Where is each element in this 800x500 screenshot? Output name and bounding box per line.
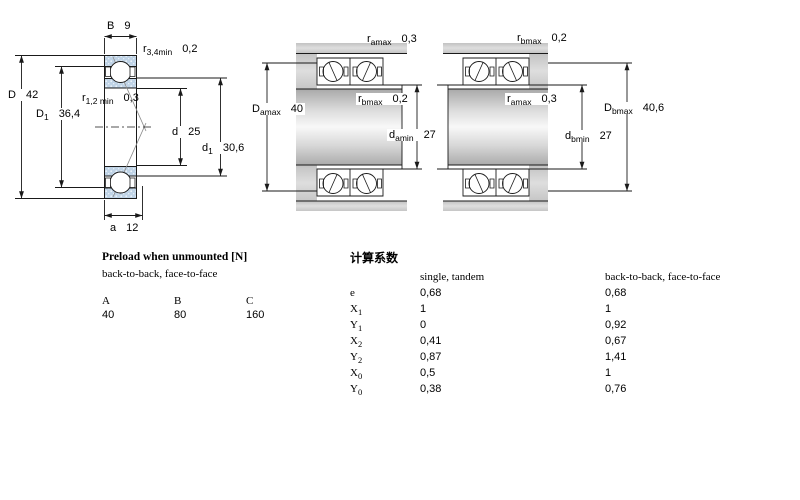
subscript: bmin (571, 134, 589, 144)
factors-header-row: single, tandem back-to-back, face-to-fac… (350, 271, 780, 283)
factor-value-single: 0,68 (420, 287, 605, 299)
factor-value-single: 0,38 (420, 383, 605, 395)
value: 25 (188, 126, 200, 138)
factor-value-paired: 0,76 (605, 383, 780, 395)
dim-label-D1: D136,4 (34, 108, 82, 120)
value: 0,3 (124, 92, 139, 104)
subscript: amax (260, 107, 281, 117)
factor-symbol: X (350, 335, 358, 347)
dim-label-Damax: Damax40 (250, 103, 305, 115)
value: 36,4 (59, 108, 80, 120)
dim-label-d1: d130,6 (200, 142, 246, 154)
factor-value-paired: 0,67 (605, 335, 780, 347)
factor-symbol: X (350, 367, 358, 379)
table-row: Y2 0,87 1,41 (350, 351, 780, 367)
column-header: A (102, 295, 174, 307)
value: 40,6 (643, 102, 664, 114)
value: 9 (124, 20, 130, 32)
factor-value-single: 0,87 (420, 351, 605, 363)
subscript: amin (395, 133, 413, 143)
preload-value: 40 (102, 309, 174, 321)
value: 30,6 (223, 142, 244, 154)
factor-subscript: 0 (358, 371, 362, 381)
subscript: bmax (612, 106, 633, 116)
dim-label-B: B9 (107, 20, 130, 32)
subscript: amax (511, 97, 532, 107)
factor-value-single: 1 (420, 303, 605, 315)
housing-shoulder-top (296, 53, 317, 89)
housing-shoulder-top (529, 53, 548, 89)
factors-table-title: 计算系数 (350, 249, 398, 266)
drawing-canvas (0, 0, 800, 500)
value: 40 (291, 103, 303, 115)
symbol: a (110, 222, 116, 234)
factor-value-single: 0 (420, 319, 605, 331)
ball-bottom (110, 172, 131, 193)
subscript: 1 (208, 146, 213, 156)
dim-label-Dbmax: Dbmax40,6 (602, 102, 666, 114)
dim-label-rbmax-b: rbmax0,2 (517, 32, 567, 44)
dim-label-rbmax-a: rbmax0,2 (356, 93, 410, 105)
symbol: B (107, 20, 114, 32)
preload-value-row: 40 80 160 (102, 309, 318, 321)
value: 42 (26, 89, 38, 101)
dim-label-d: d25 (170, 126, 202, 138)
symbol: D (252, 103, 260, 115)
factor-value-paired: 1,41 (605, 351, 780, 363)
value: 12 (126, 222, 138, 234)
factor-subscript: 2 (358, 355, 362, 365)
preload-header-row: A B C (102, 295, 318, 307)
table-row: X0 0,5 1 (350, 367, 780, 383)
housing-shoulder-bottom (296, 165, 317, 201)
table-row: Y0 0,38 0,76 (350, 383, 780, 399)
factor-subscript: 0 (358, 387, 362, 397)
table-row: e 0,68 0,68 (350, 287, 780, 303)
factors-table-body: e 0,68 0,68 X1 1 1 Y1 0 0,92 X2 0,41 0,6… (350, 287, 780, 399)
mounted-pair-a-figure (262, 43, 422, 211)
column-header-single-tandem: single, tandem (420, 271, 605, 283)
value: 0,2 (551, 32, 566, 44)
factor-symbol: Y (350, 351, 358, 363)
table-row: Y1 0 0,92 (350, 319, 780, 335)
value: 27 (424, 129, 436, 141)
symbol: d (172, 126, 178, 138)
subscript: bmax (362, 97, 383, 107)
dim-label-ramax-a: ramax0,3 (367, 33, 417, 45)
dim-label-ramax-b: ramax0,3 (505, 93, 559, 105)
factor-value-paired: 1 (605, 367, 780, 379)
preload-table-subtitle: back-to-back, face-to-face (102, 268, 217, 280)
factor-value-paired: 0,92 (605, 319, 780, 331)
preload-table-title: Preload when unmounted [N] (102, 251, 247, 263)
preload-value: 160 (246, 309, 318, 321)
value: 27 (600, 130, 612, 142)
subscript: 1,2 min (86, 96, 114, 106)
symbol: D (604, 102, 612, 114)
subscript: 3,4min (147, 47, 173, 57)
value: 0,2 (182, 43, 197, 55)
preload-value: 80 (174, 309, 246, 321)
column-header-back-to-back: back-to-back, face-to-face (605, 271, 720, 283)
factor-symbol: X (350, 303, 358, 315)
factor-value-paired: 1 (605, 303, 780, 315)
factor-subscript: 1 (358, 307, 362, 317)
value: 0,3 (401, 33, 416, 45)
factor-symbol: e (350, 287, 355, 299)
ball-top (110, 62, 131, 83)
single-bearing-figure (95, 56, 153, 199)
factor-subscript: 1 (358, 323, 362, 333)
mounted-pair-b-figure (437, 43, 632, 211)
housing-band-bottom (296, 201, 407, 211)
dim-label-a: a12 (110, 222, 138, 234)
subscript: amax (371, 37, 392, 47)
column-header: B (174, 295, 246, 307)
dim-label-dbmin: dbmin27 (563, 130, 614, 142)
value: 0,2 (392, 93, 407, 105)
factor-value-single: 0,5 (420, 367, 605, 379)
dim-label-r34min: r3,4min0,2 (143, 43, 197, 55)
value: 0,3 (541, 93, 556, 105)
bearing-datasheet: B9 r3,4min0,2 D42 D136,4 r1,2 min0,3 d25… (0, 0, 800, 500)
housing-band-bottom (443, 201, 548, 211)
dim-label-r12min: r1,2 min0,3 (82, 92, 139, 104)
housing-shoulder-bottom (529, 165, 548, 201)
column-header: C (246, 295, 318, 307)
factor-symbol: Y (350, 383, 358, 395)
factor-symbol: Y (350, 319, 358, 331)
subscript: bmax (521, 36, 542, 46)
symbol: D (8, 89, 16, 101)
symbol: D (36, 108, 44, 120)
factor-value-single: 0,41 (420, 335, 605, 347)
dim-label-D: D42 (6, 89, 40, 101)
subscript: 1 (44, 112, 49, 122)
dim-label-damin: damin27 (387, 129, 438, 141)
factor-subscript: 2 (358, 339, 362, 349)
table-row: X2 0,41 0,67 (350, 335, 780, 351)
factor-value-paired: 0,68 (605, 287, 780, 299)
table-row: X1 1 1 (350, 303, 780, 319)
